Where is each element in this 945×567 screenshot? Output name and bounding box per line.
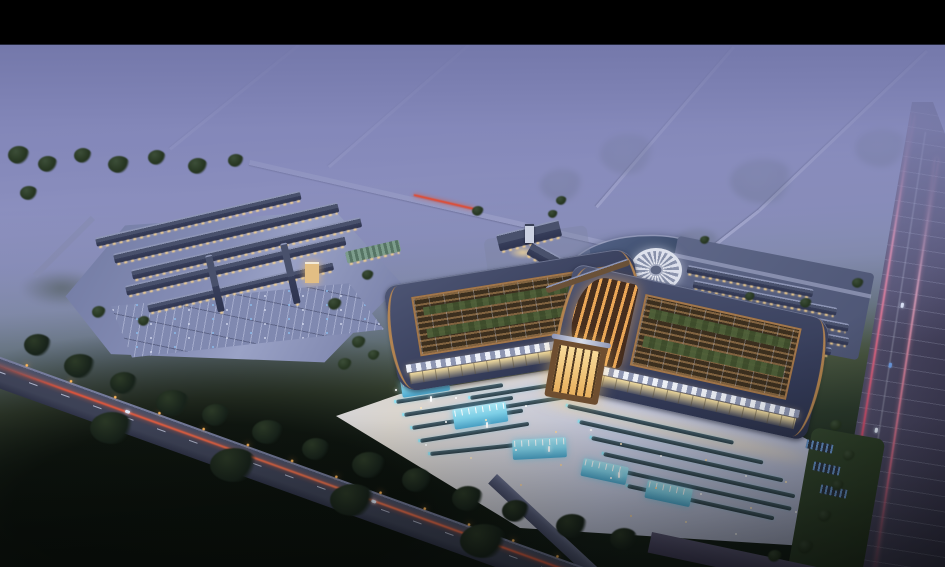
tree bbox=[338, 358, 352, 370]
tree bbox=[556, 514, 588, 538]
tree bbox=[8, 146, 30, 164]
tree bbox=[92, 306, 106, 318]
central-gate-pavilion bbox=[544, 337, 608, 405]
tree bbox=[20, 186, 38, 200]
tree bbox=[138, 316, 150, 326]
tree bbox=[188, 158, 208, 174]
tree bbox=[368, 350, 380, 360]
tree bbox=[362, 270, 374, 280]
plaza-lights bbox=[590, 429, 592, 431]
tree bbox=[252, 420, 284, 444]
hotel-tower bbox=[525, 224, 534, 243]
tree bbox=[64, 354, 96, 378]
tree bbox=[818, 510, 832, 522]
tree bbox=[302, 438, 330, 460]
tree bbox=[156, 390, 190, 416]
tree bbox=[800, 298, 812, 308]
tree bbox=[24, 334, 52, 356]
scene bbox=[0, 44, 945, 567]
tree bbox=[202, 404, 230, 426]
car bbox=[889, 363, 892, 368]
tree bbox=[843, 450, 855, 461]
fountain-jet bbox=[486, 422, 488, 428]
fountain-pool bbox=[512, 437, 567, 460]
distant-road bbox=[328, 44, 470, 168]
tree bbox=[328, 298, 342, 310]
tree bbox=[855, 129, 909, 167]
fountain-jet bbox=[618, 472, 620, 478]
tree bbox=[228, 154, 244, 167]
tree bbox=[548, 210, 558, 218]
tree bbox=[402, 468, 432, 492]
tree bbox=[700, 236, 710, 244]
tree bbox=[610, 528, 638, 550]
tree bbox=[74, 148, 92, 163]
fountain-jet bbox=[430, 396, 432, 402]
tree bbox=[502, 500, 530, 522]
tree bbox=[452, 486, 484, 511]
tree bbox=[830, 420, 842, 431]
tree bbox=[330, 484, 376, 516]
distant-road bbox=[169, 44, 300, 150]
tree bbox=[460, 524, 508, 558]
light-trail bbox=[868, 158, 938, 567]
fountain-jet bbox=[548, 446, 550, 452]
west-gate-tower bbox=[305, 262, 319, 283]
tree bbox=[768, 550, 782, 562]
tree bbox=[352, 452, 386, 478]
tree bbox=[832, 480, 844, 491]
plaza-lights bbox=[395, 389, 397, 391]
tree bbox=[110, 372, 138, 394]
letterbox-bar bbox=[0, 0, 945, 45]
tree bbox=[852, 278, 864, 288]
tree bbox=[210, 448, 258, 482]
tree bbox=[745, 292, 755, 301]
tree bbox=[730, 159, 796, 203]
tree bbox=[798, 540, 814, 554]
tree bbox=[352, 336, 366, 348]
tree bbox=[108, 156, 130, 173]
tree bbox=[148, 150, 166, 165]
tree bbox=[556, 196, 567, 205]
gate-lit-facade bbox=[551, 345, 601, 399]
tree bbox=[38, 156, 58, 172]
distant-road bbox=[596, 46, 735, 208]
tree bbox=[472, 206, 484, 216]
tree bbox=[90, 412, 134, 444]
aerial-rendering bbox=[0, 0, 945, 567]
car bbox=[901, 303, 904, 308]
